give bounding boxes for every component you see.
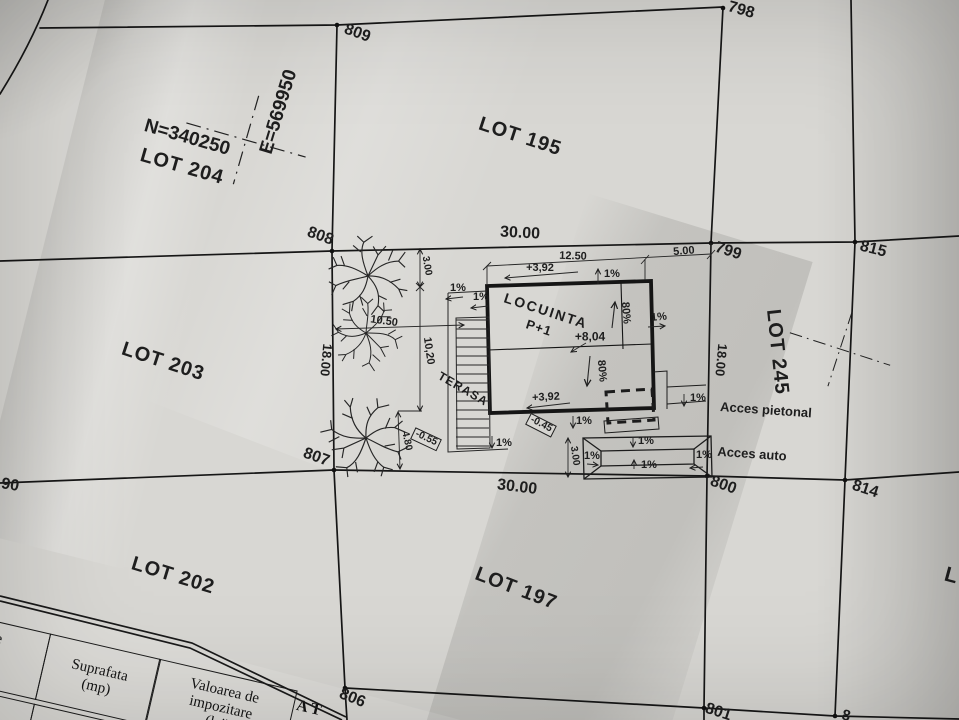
point-790-partial: 90 (0, 476, 20, 496)
slope-1-right: 1% (651, 312, 668, 325)
terrace-stairs (448, 291, 508, 452)
slope-1-drive-top: 1% (638, 436, 654, 448)
tree-icon (322, 230, 415, 320)
dim-5-00: 5.00 (673, 245, 695, 258)
grid-cross-icon (778, 296, 902, 403)
dim-3-00-drive: 3.00 (567, 446, 580, 467)
slope-1-left-b: 1% (473, 292, 489, 304)
slope-1-down-b: 1% (496, 438, 512, 450)
dim-10-20: 10,20 (420, 337, 435, 366)
slope-1-down-a: 1% (576, 416, 592, 428)
dimension-lines (336, 243, 715, 477)
slope-1-top: 1% (604, 269, 620, 281)
dim-18-left: 18.00 (318, 343, 334, 377)
dim-3-00-top: 3.00 (419, 256, 433, 277)
slope-1-drive-left: 1% (584, 451, 600, 463)
slope-80-down: 80% (594, 360, 607, 383)
sheet-edge-line (0, 596, 346, 720)
level-3-92-top: +3,92 (526, 263, 554, 275)
slope-1-drive-bottom: 1% (641, 460, 657, 472)
slope-1-left-a: 1% (450, 283, 466, 295)
slope-1-path: 1% (690, 393, 706, 405)
site-plan-photo: Categorie de folosinta Suprafata (mp) Va… (0, 0, 959, 720)
slope-80-up: 80% (618, 302, 631, 325)
slope-1-drive-right: 1% (696, 450, 712, 462)
dim-18-right: 18.00 (713, 343, 729, 377)
level-8-04: +8,04 (575, 331, 605, 344)
dim-30-top: 30.00 (500, 225, 541, 244)
level-3-92-bottom: +3,92 (532, 392, 560, 405)
dim-12-50: 12.50 (559, 251, 587, 264)
